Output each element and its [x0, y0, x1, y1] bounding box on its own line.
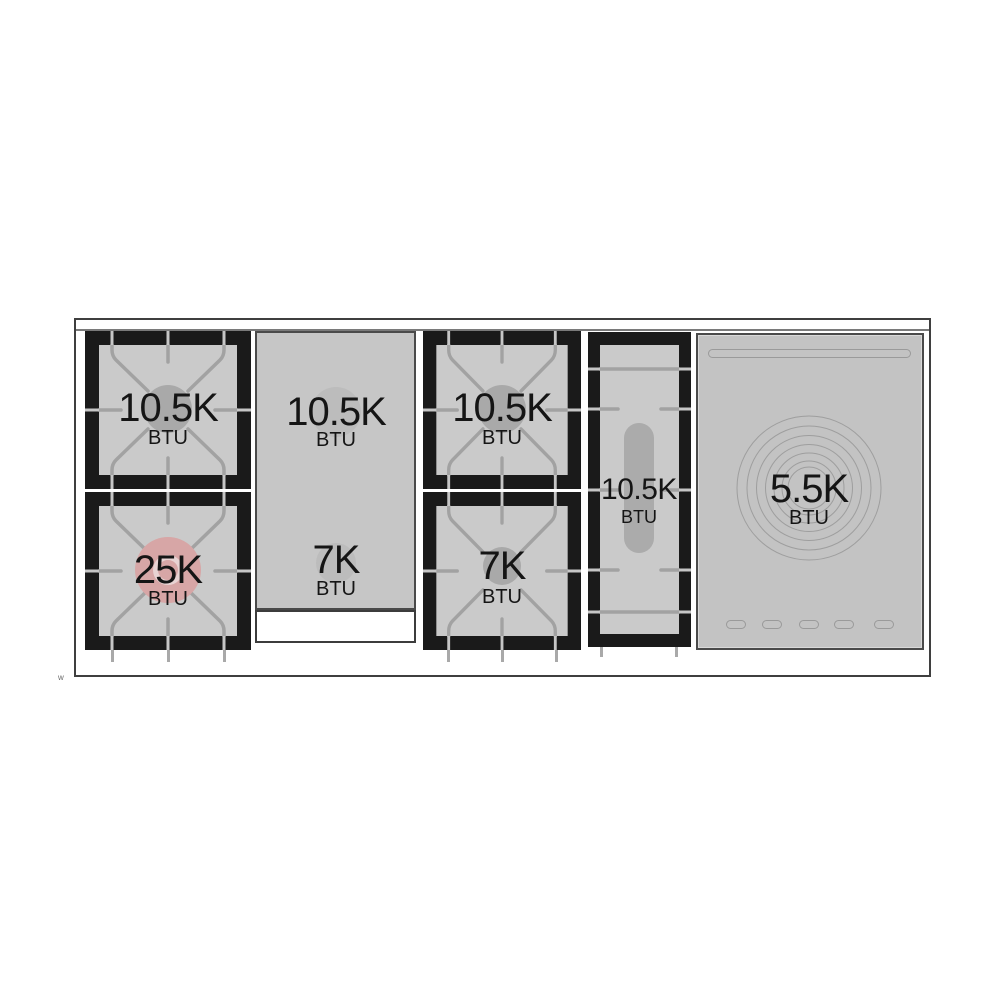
grate-prong	[223, 650, 226, 662]
btu-unit-griddle-front: BTU	[316, 579, 356, 599]
btu-unit-center-rear: BTU	[482, 428, 522, 448]
indicator-pill-icon	[834, 620, 854, 629]
indicator-pill-icon	[874, 620, 894, 629]
btu-unit-left-rear: BTU	[148, 428, 188, 448]
btu-value-griddle-rear: 10.5K	[286, 392, 386, 432]
footnote-mark: w	[58, 674, 64, 682]
btu-unit-center-front: BTU	[482, 587, 522, 607]
btu-value-center-front: 7K	[479, 546, 526, 586]
grate-prong	[501, 650, 504, 662]
btu-value-oval: 10.5K	[601, 475, 677, 505]
range-top-outline: 10.5K BTU 25K BTU 10.5K BTU 7K BTU 10.5K…	[74, 318, 931, 677]
indicator-pill-icon	[762, 620, 782, 629]
btu-value-left-front: 25K	[134, 550, 202, 590]
grate-prong	[555, 650, 558, 662]
indicator-pill-icon	[799, 620, 819, 629]
btu-unit-griddle-rear: BTU	[316, 430, 356, 450]
grate-prong	[167, 650, 170, 662]
btu-value-warming: 5.5K	[770, 469, 848, 509]
grate-prong	[111, 650, 114, 662]
btu-unit-left-front: BTU	[148, 589, 188, 609]
griddle-handle-plate	[255, 610, 416, 643]
handle-bar-icon	[708, 349, 911, 358]
range-top-diagram: 10.5K BTU 25K BTU 10.5K BTU 7K BTU 10.5K…	[0, 0, 1000, 1000]
btu-value-griddle-front: 7K	[313, 540, 360, 580]
grate-prong	[675, 647, 678, 657]
btu-unit-warming: BTU	[789, 508, 829, 528]
btu-value-left-rear: 10.5K	[118, 388, 218, 428]
btu-unit-oval: BTU	[621, 508, 657, 526]
btu-value-center-rear: 10.5K	[452, 388, 552, 428]
indicator-pill-icon	[726, 620, 746, 629]
grate-prong	[600, 647, 603, 657]
grate-prong	[447, 650, 450, 662]
